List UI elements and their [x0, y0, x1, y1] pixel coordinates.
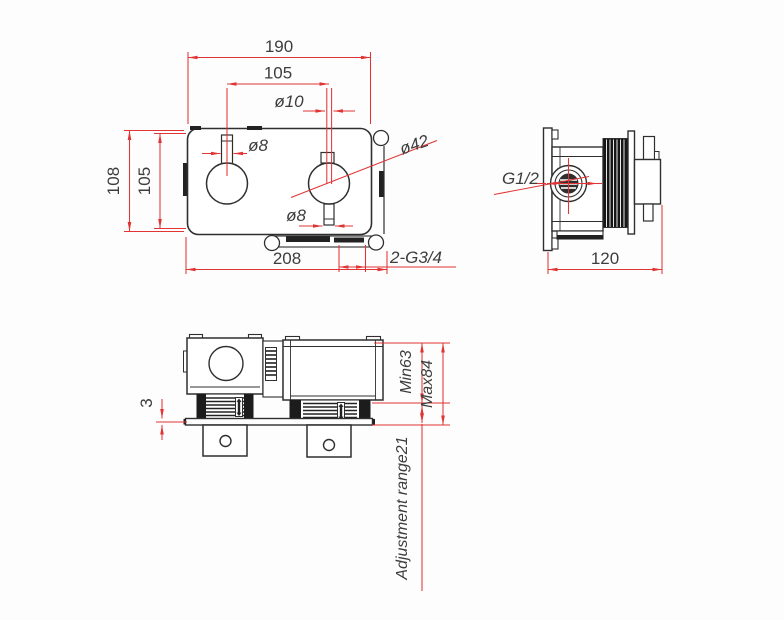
bottom-bodies	[184, 335, 384, 401]
side-body	[544, 128, 661, 251]
technical-drawing-svg: 190 105 ø10 ø8 ø42 ø8 10	[0, 0, 784, 620]
plate-clip-top-left	[190, 126, 201, 130]
dim-label-d8-upper: ø8	[248, 136, 268, 155]
dim-label-d8-lower: ø8	[286, 206, 306, 225]
bottom-view: 3 Min63 Max84 Adjustment range21	[137, 335, 450, 592]
dim-label-d10: ø10	[274, 92, 304, 111]
wall-plate-top	[186, 419, 373, 426]
plate-clip-top-mid	[247, 126, 262, 130]
dim-label-208: 208	[273, 249, 301, 268]
drawing-canvas: 190 105 ø10 ø8 ø42 ø8 10	[0, 0, 784, 620]
dim-label-max84: Max84	[419, 360, 436, 408]
mounting-lug-bottom-right	[369, 235, 384, 250]
flange-plate	[628, 131, 635, 234]
side-clip-right	[379, 171, 384, 197]
dim-label-g12: G1/2	[502, 169, 539, 188]
side-view: G1/2 120	[494, 128, 662, 274]
front-view: 190 105 ø10 ø8 ø42 ø8 10	[104, 37, 456, 274]
dim-label-2-g34: 2-G3/4	[389, 248, 442, 267]
center-connector	[263, 341, 283, 397]
dim-label-105-spacing: 105	[264, 64, 292, 83]
dim-label-3: 3	[137, 398, 156, 407]
mounting-lug-top-right	[374, 131, 389, 146]
dim-label-d42: ø42	[397, 131, 431, 159]
dim-label-105-height: 105	[135, 167, 154, 195]
right-valve-body-top	[283, 340, 383, 400]
bottom-knobs	[203, 425, 351, 457]
side-clip-left	[183, 163, 187, 196]
dim-label-min63: Min63	[398, 350, 415, 394]
dim-label-adjustment-range: Adjustment range21	[394, 436, 411, 580]
dim-label-120: 120	[591, 249, 619, 268]
dim-label-190: 190	[265, 37, 293, 56]
threaded-sleeve	[603, 139, 628, 228]
dim-label-108: 108	[104, 167, 123, 195]
cartridge-knob-side	[635, 137, 661, 222]
